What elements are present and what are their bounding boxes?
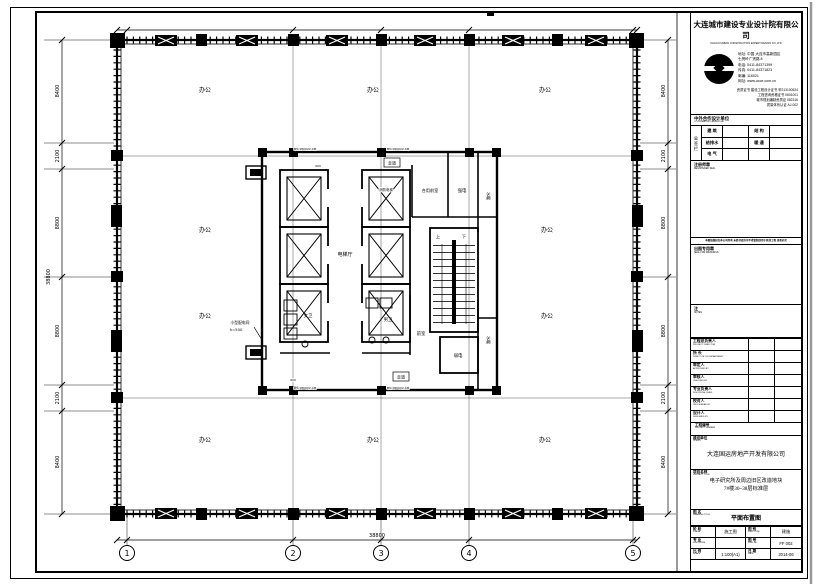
stair-down-label: 下 <box>462 234 466 240</box>
notes-section: 注 NOTES <box>691 305 801 338</box>
total-dim-bottom: 38800 <box>369 533 385 539</box>
personnel-label-en: CHECKED BY <box>693 380 748 383</box>
fold-mark <box>487 12 494 16</box>
personnel-name-cell <box>748 375 774 386</box>
personnel-name-cell <box>748 399 774 410</box>
project-title-line2: 7#楼30~38层标准层 <box>691 485 801 493</box>
stage-value: 施工图 <box>716 527 746 537</box>
personnel-label-en: DESIGNED BY <box>693 416 748 419</box>
coop-header: 中外合作设计单位 COOPERATIVE DESIGN UNIT <box>691 115 801 126</box>
project-title-section: 项目名称 PROJECT TITLE 电子研究所及周边旧区改造地块 7#楼30~… <box>691 470 801 510</box>
dim-label: 2100 <box>55 392 61 405</box>
shared-lobby-label: 合用前室 <box>422 187 439 194</box>
dimensions-right <box>640 37 676 517</box>
contact-line: 网址: www.ucce.com.cn <box>738 79 799 84</box>
office-label: 办公 <box>539 86 551 94</box>
grid-bubble-3: 3 <box>378 549 383 558</box>
small-dim: 900 <box>290 378 296 382</box>
personnel-sign-cell <box>774 375 801 386</box>
dim-label: 8400 <box>661 85 667 98</box>
sign-value <box>770 126 801 138</box>
personnel-row: 所 长DIRECTOR OF DEPARTMENT <box>691 351 801 363</box>
personnel-label-en: DIRECTOR OF DEPARTMENT <box>693 356 748 359</box>
scale-value: 1:100(A1) <box>716 549 746 559</box>
seal-label-en: SEAL FOR DRAWINGS <box>691 252 801 255</box>
drawing-info-table: 阶 段STAGE 施工图 图 别DWG TYPE 建施 专 业DISCIPLIN… <box>691 526 801 560</box>
client-name: 大连国运房地产开发有限公司 <box>691 449 801 458</box>
office-label: 办公 <box>541 226 553 234</box>
office-label: 办公 <box>199 312 211 320</box>
client-section: 建设单位 CLIENT 大连国运房地产开发有限公司 <box>691 436 801 470</box>
personnel-name-cell <box>748 351 774 362</box>
date-value: 2014-06 <box>771 549 801 559</box>
stair-up-label: 上 <box>436 233 440 239</box>
sign-value <box>770 138 801 150</box>
personnel-sign-cell <box>774 399 801 410</box>
corridor-top-label: 走道 <box>388 160 396 166</box>
personnel-row: 校对人PROOFREAD BY <box>691 399 801 411</box>
project-number-section: 工程编号 PROJECT NUMBER <box>691 422 801 436</box>
office-label: 办公 <box>367 436 379 444</box>
water-top-label: 水暖 <box>486 192 492 200</box>
project-number-label-en: PROJECT NUMBER <box>693 427 801 430</box>
wall-tag: M5/1800X2.4M <box>387 147 410 151</box>
dim-label: 8400 <box>55 85 61 98</box>
company-name-en: DALIAN URBAN CONSTRUCTION EXPERT DESIGN … <box>697 41 796 45</box>
office-label: 办公 <box>541 312 553 320</box>
dim-label: 8800 <box>55 217 61 230</box>
personnel-row: 专业负责人DISCIPLINE CHIEF <box>691 387 801 399</box>
annotation: 小型配电间 h=500 <box>230 320 262 340</box>
copyright-note: 本图纸版权归本公司所有 未经书面许可不得复制或用于其他工程 违者必究 <box>691 238 801 245</box>
info-label-en: DATE <box>746 553 770 556</box>
dimensions-left <box>44 37 114 517</box>
sign-column-label: 会签栏 <box>691 126 702 161</box>
client-label-en: CLIENT <box>691 440 801 443</box>
notes-label-en: NOTES <box>691 312 801 315</box>
wall-tag: M5/1800X2.4M <box>387 386 410 390</box>
mens-wc-label: 男卫 <box>384 317 393 323</box>
grid-bubble-1: 1 <box>124 549 129 558</box>
company-header: 大连城市建设专业设计院有限公司 DALIAN URBAN CONSTRUCTIO… <box>691 12 801 115</box>
sign-value <box>723 149 749 161</box>
drawing-title-section: 图 名 DRAWING TITLE 平面布置图 <box>691 510 801 526</box>
sign-label: 暖 通 <box>749 138 770 150</box>
info-row: 阶 段STAGE 施工图 图 别DWG TYPE 建施 <box>691 527 801 538</box>
water-bottom-label: 水暖 <box>486 336 492 344</box>
dwg-number-value: FF 002 <box>771 538 801 548</box>
office-label: 办公 <box>199 436 211 444</box>
dim-label: 2100 <box>661 150 667 163</box>
personnel-label-en: PROOFREAD BY <box>693 404 748 407</box>
wall-tag: M5/1800X2.4M <box>294 147 317 151</box>
personnel-table: 工程总负责人PROJECT DIRECTOR 所 长DIRECTOR OF DE… <box>691 338 801 423</box>
sign-label: 结 构 <box>749 126 770 138</box>
personnel-row: 审定人APPROVED BY <box>691 363 801 375</box>
wc-fixtures <box>284 298 392 347</box>
sign-label: 建 筑 <box>702 126 723 138</box>
personnel-name-cell <box>748 411 774 422</box>
company-logo-icon <box>704 54 734 84</box>
coop-header-en: COOPERATIVE DESIGN UNIT <box>694 121 798 124</box>
personnel-sign-cell <box>774 339 801 350</box>
grid-bubble-5: 5 <box>630 549 635 558</box>
sign-label: 电 气 <box>702 149 723 161</box>
sign-label <box>749 149 770 161</box>
personnel-sign-cell <box>774 387 801 398</box>
grid-bubbles: 1 2 3 4 5 <box>120 546 641 561</box>
dim-label: 8800 <box>55 325 61 338</box>
total-dim-left: 38800 <box>46 269 52 285</box>
certificates: 资质证书 建设工程设计证书 甲213100524 工程咨询资格证书 060100… <box>695 88 798 108</box>
sign-value <box>723 138 749 150</box>
info-label-en: DISCIPLINE <box>691 542 715 545</box>
sign-value <box>770 149 801 161</box>
sign-label: 给排水 <box>702 138 723 150</box>
womens-wc-label: 女卫 <box>304 312 313 319</box>
info-row: 比 例SCALE 1:100(A1) 日 期DATE 2014-06 <box>691 549 801 560</box>
personnel-sign-cell <box>774 411 801 422</box>
info-label-en: DWG TYPE <box>746 531 770 534</box>
wall-tag: M5/1800X2.4M <box>294 386 317 390</box>
annotation-sub: h=500 <box>230 327 243 332</box>
dim-label: 2100 <box>55 150 61 163</box>
sign-value <box>723 126 749 138</box>
dim-label: 2100 <box>661 392 667 405</box>
grid-bubble-2: 2 <box>290 549 295 558</box>
dwg-type-value: 建施 <box>771 527 801 537</box>
personnel-sign-cell <box>774 363 801 374</box>
dim-label: 8800 <box>661 217 667 230</box>
lobby-label: 前室 <box>417 330 426 337</box>
strong-electric-label: 强电 <box>458 187 467 194</box>
company-name-cn: 大连城市建设专业设计院有限公司 <box>691 19 801 41</box>
personnel-name-cell <box>748 363 774 374</box>
small-dim: 900 <box>315 164 321 168</box>
dim-label: 8800 <box>661 325 667 338</box>
personnel-label-en: DISCIPLINE CHIEF <box>693 392 748 395</box>
cert-line: 质量体系认证 AJ-002 <box>695 103 798 108</box>
elevator-hall-label: 电梯厅 <box>337 251 352 258</box>
info-label-en: STAGE <box>691 531 715 534</box>
dim-label: 8400 <box>55 456 61 469</box>
personnel-name-cell <box>748 387 774 398</box>
corridor-bottom-label: 走道 <box>397 374 405 380</box>
personnel-row: 审核人CHECKED BY <box>691 375 801 387</box>
dim-label: 8400 <box>661 456 667 469</box>
dimension-top <box>114 27 640 33</box>
seal-label-en: REGISTERED SEAL <box>691 168 801 171</box>
project-title-line1: 电子研究所及周边旧区改造地块 <box>691 477 801 485</box>
stair <box>430 228 478 332</box>
personnel-name-cell <box>748 339 774 350</box>
signature-table: 会签栏 建 筑 结 构 给排水 暖 通 电 气 <box>691 126 801 161</box>
info-label-en: SCALE <box>691 553 715 556</box>
office-label: 办公 <box>199 86 211 94</box>
grid-bubble-4: 4 <box>466 549 471 558</box>
annotation-text: 小型配电间 <box>231 320 250 325</box>
info-row: 专 业DISCIPLINE 图 号DWG No. FF 002 <box>691 538 801 549</box>
office-label: 办公 <box>367 86 379 94</box>
office-label: 办公 <box>199 226 211 234</box>
weak-electric-label: 弱电 <box>454 352 463 359</box>
fire-elevator-label: 消防电梯 <box>379 187 393 192</box>
drawing-sheet: 走道 走道 消防电梯 电梯厅 合用前室 强电 水暖 水暖 女卫 男卫 前室 弱电… <box>0 0 817 586</box>
company-contact: 地址: 中国 大连市高新园区 七贤岭广贤路 8 电话: 0411-8437139… <box>738 52 799 84</box>
personnel-label-en: APPROVED BY <box>693 368 748 371</box>
registered-seal-section: 注册师章 REGISTERED SEAL <box>691 161 801 238</box>
info-label-en: DWG No. <box>746 542 770 545</box>
office-label: 办公 <box>539 436 551 444</box>
personnel-label-en: PROJECT DIRECTOR <box>693 344 748 347</box>
drawing-seal-section: 出图专用章 SEAL FOR DRAWINGS <box>691 245 801 305</box>
title-block: 大连城市建设专业设计院有限公司 DALIAN URBAN CONSTRUCTIO… <box>690 12 800 572</box>
discipline-value <box>716 538 746 548</box>
personnel-row: 工程总负责人PROJECT DIRECTOR <box>691 339 801 351</box>
personnel-sign-cell <box>774 351 801 362</box>
